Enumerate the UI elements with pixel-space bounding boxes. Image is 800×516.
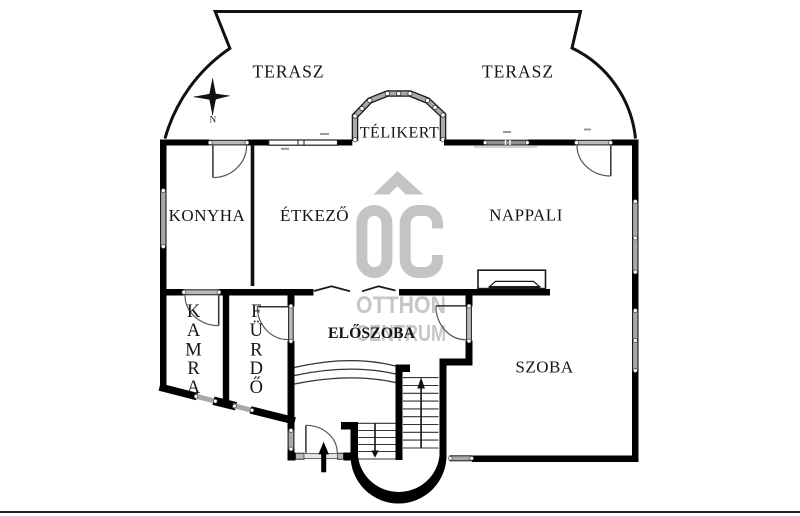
svg-text:K: K bbox=[187, 302, 201, 322]
svg-text:TERASZ: TERASZ bbox=[252, 62, 324, 82]
svg-text:SZOBA: SZOBA bbox=[515, 358, 573, 377]
svg-text:R: R bbox=[250, 341, 263, 361]
svg-text:OTTHON: OTTHON bbox=[356, 292, 446, 319]
svg-text:R: R bbox=[187, 359, 200, 379]
svg-text:N: N bbox=[210, 115, 217, 125]
svg-text:Ü: Ü bbox=[250, 320, 263, 341]
svg-text:Ő: Ő bbox=[250, 376, 263, 398]
svg-text:M: M bbox=[185, 341, 201, 361]
svg-text:TERASZ: TERASZ bbox=[482, 62, 554, 82]
svg-text:ÉTKEZŐ: ÉTKEZŐ bbox=[280, 206, 349, 225]
svg-text:NAPPALI: NAPPALI bbox=[489, 206, 563, 225]
svg-text:KONYHA: KONYHA bbox=[169, 206, 246, 225]
svg-text:D: D bbox=[250, 359, 263, 379]
svg-text:ELŐSZOBA: ELŐSZOBA bbox=[328, 323, 415, 342]
svg-text:TÉLIKERT: TÉLIKERT bbox=[360, 123, 439, 142]
svg-text:F: F bbox=[251, 302, 261, 322]
svg-text:A: A bbox=[187, 321, 201, 341]
